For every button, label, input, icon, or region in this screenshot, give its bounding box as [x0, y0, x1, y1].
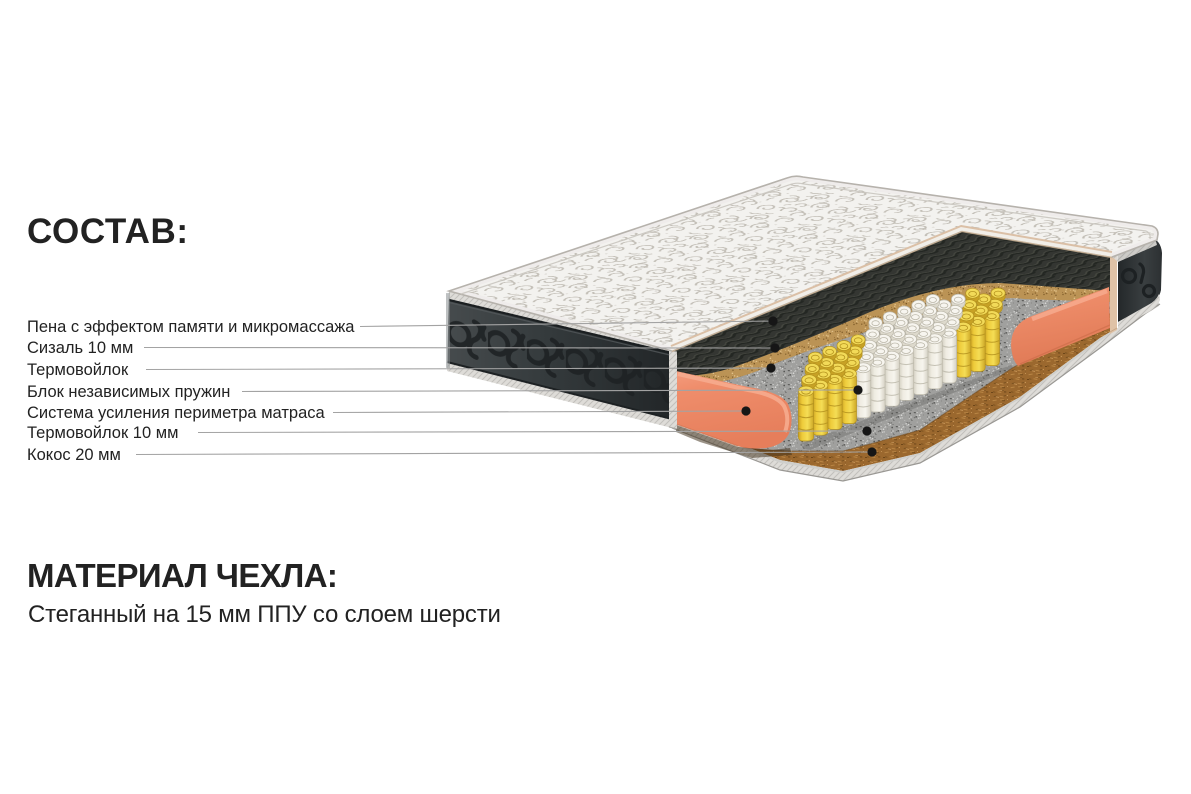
svg-text:СОСТАВ:: СОСТАВ: [27, 212, 189, 251]
svg-text:Кокос 20 мм: Кокос 20 мм [27, 446, 121, 464]
svg-text:Термовойлок: Термовойлок [27, 361, 129, 379]
svg-text:Пена с эффектом памяти и микро: Пена с эффектом памяти и микромассажа [27, 318, 355, 336]
svg-text:Блок независимых пружин: Блок независимых пружин [27, 383, 230, 401]
svg-text:МАТЕРИАЛ ЧЕХЛА:: МАТЕРИАЛ ЧЕХЛА: [27, 557, 337, 594]
svg-text:Стеганный на 15 мм ППУ со слое: Стеганный на 15 мм ППУ со слоем шерсти [28, 601, 501, 628]
svg-text:Сизаль 10 мм: Сизаль 10 мм [27, 339, 133, 357]
svg-text:Термовойлок 10 мм: Термовойлок 10 мм [27, 424, 178, 442]
svg-text:Система усиления периметра мат: Система усиления периметра матраса [27, 404, 326, 422]
